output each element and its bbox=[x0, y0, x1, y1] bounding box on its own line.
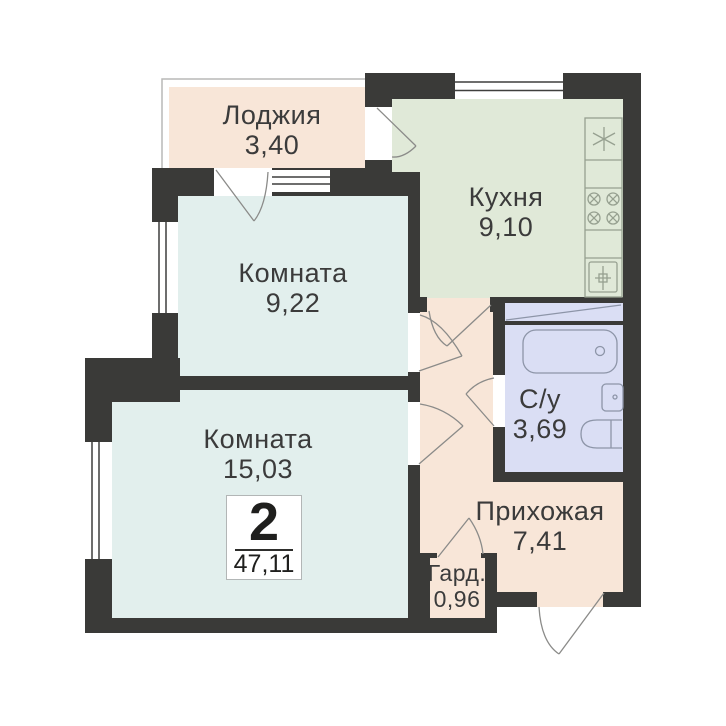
room-area: 3,40 bbox=[223, 130, 322, 160]
room-label-loggia: Лоджия 3,40 bbox=[223, 100, 322, 160]
kitchen-window bbox=[455, 73, 563, 99]
room-name: Гард. bbox=[428, 560, 487, 586]
room2-door-opening bbox=[408, 402, 420, 465]
wall-shaft-top bbox=[505, 297, 623, 303]
room-area: 9,10 bbox=[469, 212, 544, 242]
wall-kitchen-bottom-stub-left bbox=[408, 297, 427, 312]
wall-shaft-divider bbox=[505, 321, 623, 325]
floor-plan: Лоджия 3,40 Кухня 9,10 Комната 9,22 Комн… bbox=[0, 0, 726, 726]
wall-step-block bbox=[85, 358, 180, 402]
room-area: 15,03 bbox=[203, 454, 312, 484]
room-name: Комната bbox=[238, 258, 347, 288]
room-label-room2: Комната 15,03 bbox=[203, 424, 312, 484]
wall-bottom bbox=[85, 618, 497, 633]
wall-hallway-left bbox=[408, 172, 420, 618]
room-area: 7,41 bbox=[475, 526, 604, 556]
floor-plan-drawing bbox=[0, 0, 726, 726]
room-area: 0,96 bbox=[428, 586, 487, 612]
room1-door-opening bbox=[408, 313, 420, 372]
wall-kitchen-left-upper bbox=[365, 73, 392, 107]
room-name: Кухня bbox=[469, 182, 544, 212]
total-area: 47,11 bbox=[227, 551, 301, 578]
bathroom-door-opening bbox=[493, 375, 505, 427]
room-name: Комната bbox=[203, 424, 312, 454]
room-name: Лоджия bbox=[223, 100, 322, 130]
room-area: 9,22 bbox=[238, 288, 347, 318]
room1-window bbox=[152, 222, 178, 313]
wall-entrance-right bbox=[603, 592, 641, 607]
room-area: 3,69 bbox=[513, 414, 568, 444]
wall-wardrobe-right bbox=[485, 553, 497, 618]
room-label-room1: Комната 9,22 bbox=[238, 258, 347, 318]
room-label-bathroom: С/у 3,69 bbox=[513, 384, 568, 444]
room-label-hallway: Прихожая 7,41 bbox=[475, 496, 604, 556]
wall-between-rooms bbox=[178, 376, 408, 390]
room-label-wardrobe: Гард. 0,96 bbox=[428, 560, 487, 612]
apartment-badge: 2 47,11 bbox=[226, 495, 302, 580]
room2-window bbox=[85, 442, 112, 559]
wall-entrance-left bbox=[497, 592, 537, 607]
loggia-window bbox=[272, 170, 330, 192]
balcony-door-opening-room1 bbox=[214, 168, 272, 196]
rooms-count: 2 bbox=[227, 497, 301, 548]
balcony-door-opening-kitchen bbox=[365, 107, 392, 160]
room-name: С/у bbox=[513, 384, 568, 414]
entrance-threshold bbox=[537, 592, 603, 607]
room-label-kitchen: Кухня 9,10 bbox=[469, 182, 544, 242]
wall-right bbox=[623, 73, 641, 607]
room-name: Прихожая bbox=[475, 496, 604, 526]
wall-bathroom-bottom bbox=[493, 472, 623, 482]
